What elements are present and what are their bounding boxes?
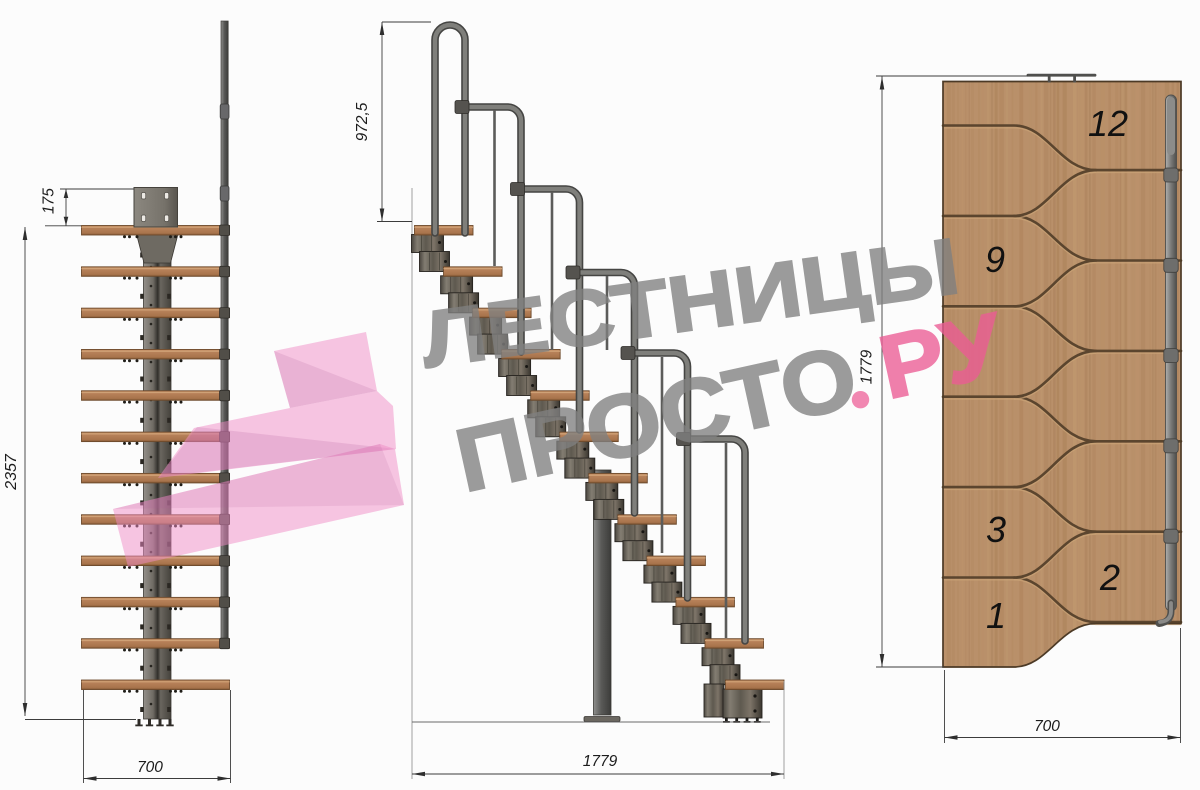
svg-text:700: 700	[137, 759, 163, 776]
svg-text:972,5: 972,5	[354, 102, 371, 141]
svg-text:1779: 1779	[583, 753, 618, 770]
svg-text:12: 12	[1088, 103, 1128, 144]
svg-text:3: 3	[986, 509, 1006, 550]
svg-text:700: 700	[1034, 718, 1060, 735]
svg-text:2357: 2357	[3, 453, 20, 491]
svg-text:2: 2	[1099, 557, 1120, 598]
svg-text:175: 175	[41, 188, 58, 214]
svg-text:9: 9	[985, 239, 1005, 280]
svg-text:1: 1	[986, 595, 1006, 636]
